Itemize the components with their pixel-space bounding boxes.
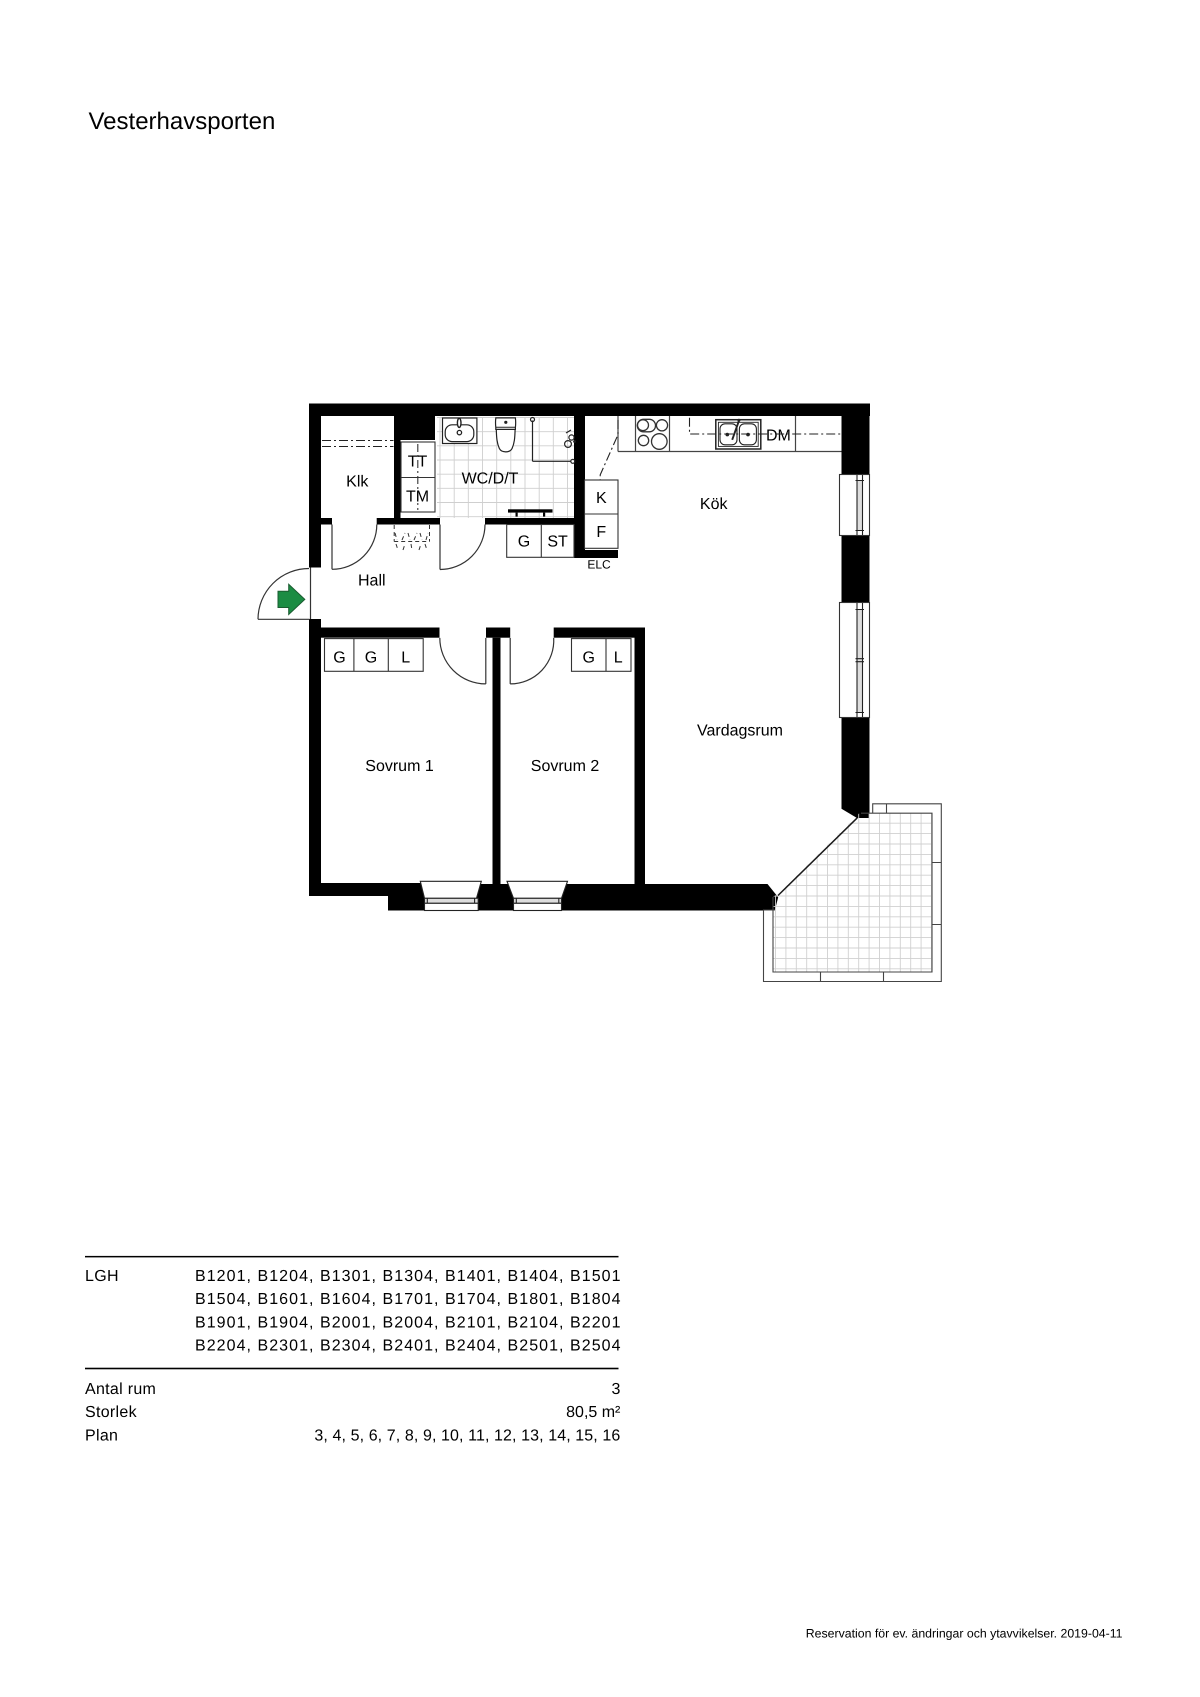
svg-text:B1901, B1904, B2001, B2004, B2: B1901, B1904, B2001, B2004, B2101, B2104… [195,1315,622,1332]
svg-text:B2204, B2301, B2304, B2401, B2: B2204, B2301, B2304, B2401, B2404, B2501… [195,1338,622,1355]
svg-text:G: G [582,650,594,667]
svg-text:G: G [365,650,377,667]
svg-text:ST: ST [547,534,568,551]
svg-text:WC/D/T: WC/D/T [462,471,519,488]
svg-text:TT: TT [408,454,428,471]
svg-text:Kök: Kök [700,496,729,513]
svg-text:Plan: Plan [85,1427,118,1444]
svg-text:Sovrum 1: Sovrum 1 [365,758,434,775]
svg-text:Sovrum 2: Sovrum 2 [531,758,600,775]
svg-text:F: F [596,524,606,541]
svg-text:Storlek: Storlek [85,1404,138,1421]
svg-text:ELC: ELC [587,558,611,572]
svg-text:Hall: Hall [358,573,386,590]
svg-text:Vardagsrum: Vardagsrum [697,722,783,739]
svg-text:Reservation för ev. ändringar: Reservation för ev. ändringar och ytavvi… [806,1627,1123,1641]
svg-text:LGH: LGH [85,1268,119,1285]
svg-text:L: L [614,650,623,667]
svg-text:G: G [518,534,530,551]
svg-text:L: L [401,650,410,667]
svg-text:3, 4, 5, 6, 7, 8, 9, 10, 11, 1: 3, 4, 5, 6, 7, 8, 9, 10, 11, 12, 13, 14,… [314,1427,620,1444]
svg-text:80,5 m²: 80,5 m² [566,1404,621,1421]
svg-text:Vesterhavsporten: Vesterhavsporten [89,108,276,135]
svg-text:B1201, B1204, B1301, B1304, B1: B1201, B1204, B1301, B1304, B1401, B1404… [195,1268,622,1285]
svg-text:G: G [333,650,345,667]
svg-text:K: K [596,490,607,507]
svg-text:DM: DM [766,428,791,445]
svg-text:Klk: Klk [346,474,369,491]
svg-text:Antal rum: Antal rum [85,1381,156,1398]
svg-text:3: 3 [611,1381,620,1398]
svg-text:TM: TM [406,488,429,505]
svg-text:B1504, B1601, B1604, B1701, B1: B1504, B1601, B1604, B1701, B1704, B1801… [195,1291,622,1308]
